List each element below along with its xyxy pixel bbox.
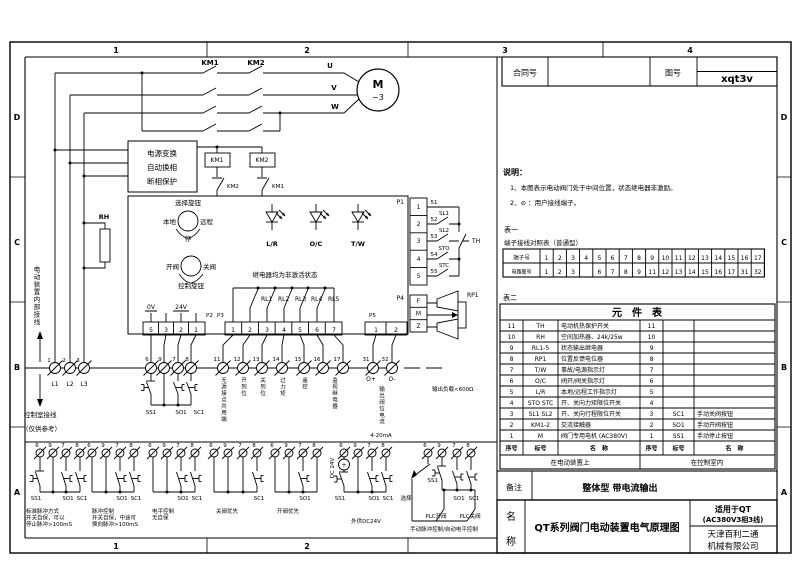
frame-row-letter: B	[781, 363, 787, 372]
table-cell: 1	[510, 433, 514, 440]
phase-w-label: W	[331, 103, 339, 111]
phase-v-label: V	[331, 84, 337, 92]
monitor-relay-label: 监视继电器	[331, 376, 338, 410]
frame-row-letter: B	[14, 363, 20, 372]
table-cell: 7	[650, 367, 654, 374]
junction-dot	[291, 287, 294, 290]
terminal14-label: 过力矩	[279, 376, 286, 397]
rp1-potentiometer	[458, 302, 466, 328]
selector-arrow-icon	[411, 470, 417, 479]
p5-label: P5	[369, 313, 376, 319]
terminal-number: 6	[145, 357, 149, 363]
table-cell: 电动机热保护开关	[561, 322, 609, 330]
table-cell: 3	[510, 411, 514, 418]
terminal-number: 6	[87, 443, 91, 449]
terminal-number: 3	[76, 358, 80, 364]
table-cell: 32	[754, 269, 762, 276]
wire	[130, 472, 135, 486]
connector-pin: 1	[194, 327, 198, 334]
group2-caption3: 换向脉冲>100mS	[92, 520, 138, 528]
table-cell: 手动开阀按钮	[697, 421, 733, 429]
table-cell: 9	[650, 345, 654, 352]
wire-number: 52	[431, 217, 438, 223]
wire	[453, 471, 458, 484]
table-cell: 手动停止按钮	[697, 432, 733, 440]
output-plus-label: O+	[366, 376, 376, 383]
group2-caption1: 脉冲控制	[92, 507, 115, 515]
junction-dot	[54, 149, 57, 152]
terminal-number: 11	[214, 357, 221, 363]
terminal-number: 8	[312, 443, 316, 449]
terminal-number: 7	[238, 443, 242, 449]
terminal-number: 6	[423, 443, 427, 449]
terminal-number: 2	[62, 358, 66, 364]
notes-line2: 2、⊘ ：用户接线端子。	[510, 198, 580, 207]
button-label: SC1	[192, 496, 203, 502]
output-minus-label: O-	[388, 376, 395, 383]
table-cell: 5	[597, 255, 601, 262]
junction-dot	[69, 162, 72, 165]
terminal-number: 7	[172, 357, 176, 363]
table-cell: 9	[650, 255, 654, 262]
group1-caption2: 开关自保，可以	[26, 514, 65, 522]
group1-caption1: 标准脉冲方式	[26, 507, 60, 515]
terminal-number: 15	[295, 357, 302, 363]
terminal-number: 9	[353, 443, 357, 449]
title-block-dividers	[525, 57, 777, 553]
relay-label: RL5	[328, 296, 340, 303]
notes-heading: 说明：	[503, 167, 527, 177]
schematic-sheet: KM1 KM2 U V W M ~3 电源变换 自动换相 断相保护 KM1 KM…	[0, 0, 800, 566]
terminal-number: 13	[253, 357, 260, 363]
table-cell: STO STC	[528, 400, 553, 407]
applicable-line1: 适用于QT	[715, 504, 752, 514]
group2-caption2: 开关自保，中途可	[92, 514, 137, 522]
junction-dot	[141, 72, 144, 75]
table-cell: 5	[510, 389, 514, 396]
connector-pin: Z	[416, 323, 420, 330]
group1-caption3: 停止脉冲>100mS	[26, 520, 72, 528]
wire	[36, 472, 41, 486]
terminal-number: 7	[452, 443, 456, 449]
frame-col-number: 1	[113, 542, 119, 551]
junction-dot	[65, 491, 68, 494]
control-knob-icon	[181, 256, 201, 276]
junction-dot	[119, 491, 122, 494]
terminal-number: 16	[314, 357, 321, 363]
wire	[174, 382, 179, 394]
terminal-number: 6	[270, 443, 274, 449]
table-cell: 5	[650, 389, 654, 396]
button-label: SC1	[77, 496, 88, 502]
table-cell: 3	[650, 411, 654, 418]
p3-label: P3	[217, 313, 224, 319]
table-cell: 8	[624, 269, 628, 276]
company-line2: 机械有限公司	[707, 541, 758, 552]
local-label: 本地	[163, 217, 177, 226]
terminal-number: 6	[148, 443, 152, 449]
table-cell: 1	[650, 433, 654, 440]
table-cell: 10	[662, 255, 670, 262]
table-cell: 2	[558, 269, 562, 276]
table2-footer: 标号	[671, 445, 684, 453]
rp1-wiper-arrow	[452, 312, 458, 318]
terminal13-label: 关到位	[259, 376, 266, 397]
table-cell: KM1-2	[531, 422, 550, 429]
terminal-number: 6	[339, 443, 343, 449]
terminal-number: 7	[298, 443, 302, 449]
sl1-label: SL1	[439, 211, 449, 217]
table2-footer: 序号	[504, 445, 517, 453]
km1-interlock-label: KM1	[272, 184, 284, 190]
junction-dot	[177, 404, 180, 407]
table-cell: 15	[728, 255, 736, 262]
table-cell: 交流接触器	[561, 421, 591, 429]
p4-label: P4	[397, 295, 405, 302]
button-label: SC1	[131, 496, 142, 502]
connector-pin: 1	[417, 204, 421, 211]
connector-pin: 3	[417, 238, 421, 245]
connector-pin: 3	[164, 327, 168, 334]
table-cell: 11	[675, 255, 683, 262]
sc1-label: SC1	[194, 410, 205, 416]
frame-row-letter: D	[14, 113, 21, 122]
junction-dot	[105, 491, 108, 494]
table-cell: 12	[688, 255, 696, 262]
terminal-number: 6	[35, 443, 39, 449]
button-label: SO1	[62, 496, 73, 502]
open-valve-label: 开阀	[166, 262, 179, 271]
zero-volt-label: 0V	[147, 304, 156, 311]
group3-caption1: 电平控制	[152, 507, 175, 515]
junction-dot	[257, 287, 260, 290]
sl2-label: SL2	[439, 228, 449, 234]
plc-open-label: PLC开阀	[425, 512, 446, 520]
junction-dot	[357, 491, 360, 494]
remark-value: 整体型 带电流输出	[581, 482, 657, 494]
notes-line1: 1、本图表示电动阀门处于中间位置，状态继电器非激励。	[510, 183, 677, 192]
table-cell: 2	[510, 422, 514, 429]
wire	[164, 335, 166, 362]
table-cell: 1	[545, 255, 549, 262]
table-cell: 3	[571, 255, 575, 262]
table-cell: 7	[611, 269, 615, 276]
table-cell: 开、关向力矩限位开关	[561, 399, 621, 407]
table-cell: 8	[650, 356, 654, 363]
contact-strokes	[203, 66, 466, 276]
junction-dot	[180, 491, 183, 494]
table-cell: 11	[508, 323, 516, 330]
junction-dot	[458, 258, 461, 261]
group7-sc1-label: SC1	[469, 496, 480, 502]
frame-col-number: 1	[113, 46, 119, 55]
drawing-title: QT系列阀门电动装置电气原理图	[534, 521, 679, 534]
terminal-number: 8	[185, 357, 189, 363]
so1-label: SO1	[175, 410, 186, 416]
button-label: SO1	[116, 496, 127, 502]
table-cell: 16	[741, 255, 749, 262]
table-cell: 10	[508, 334, 516, 341]
frame-col-number: 3	[502, 46, 508, 55]
terminal-number: 9	[437, 443, 441, 449]
output-current-label: 输出阀位电流	[378, 385, 385, 426]
led-label: T/W	[351, 240, 365, 248]
table-cell: 阀开/阀关指示灯	[561, 377, 605, 385]
table-cell: 7	[624, 255, 628, 262]
table-cell: SO1	[672, 422, 685, 429]
table-cell: O/C	[535, 378, 546, 385]
button-label: SO1	[368, 496, 379, 502]
terminal-number: 7	[367, 443, 371, 449]
wire	[392, 335, 396, 362]
table-cell: 4	[584, 255, 588, 262]
terminal11-label: 无源接点共用端	[220, 377, 227, 423]
wire	[250, 289, 258, 308]
connector-pin: 3	[265, 327, 269, 334]
km2-interlock-label: KM2	[227, 184, 239, 190]
terminal-number: 9	[101, 443, 105, 449]
group6-caption: 外供DC24V	[351, 517, 381, 525]
table-cell: 16	[714, 269, 722, 276]
power-box-line2: 自动换相	[147, 162, 177, 172]
wire	[116, 472, 121, 486]
connector-pin: 2	[248, 327, 252, 334]
terminal-number: 8	[190, 443, 194, 449]
junction-dot	[302, 491, 305, 494]
table-cell: 6	[611, 255, 615, 262]
table-cell: 2	[558, 255, 562, 262]
junction-dot	[458, 223, 461, 226]
table2-footer: 名 称	[725, 445, 743, 453]
wire	[178, 335, 181, 362]
table-cell: 8	[510, 356, 514, 363]
connector-pin: 2	[417, 221, 421, 228]
terminal-number: 8	[75, 443, 79, 449]
p1-label: P1	[397, 199, 405, 206]
junction-dot	[456, 489, 459, 492]
led-label: L/R	[266, 240, 278, 248]
phase-label: L1	[51, 381, 58, 388]
selector-knob-label: 选择旋钮	[175, 198, 202, 207]
wire	[243, 335, 250, 362]
junction-dot	[163, 404, 166, 407]
wire	[382, 472, 387, 486]
terminal-number: 7	[176, 443, 180, 449]
terminal-number: 32	[382, 357, 389, 363]
location-cell: 在电动装置上	[551, 458, 591, 467]
junction-dot	[166, 491, 169, 494]
wire	[76, 472, 81, 486]
button-label: SO1	[177, 496, 188, 502]
terminal-number: 9	[48, 443, 52, 449]
wire	[187, 382, 192, 394]
frame-row-letter: A	[14, 488, 21, 497]
group4-caption: 关阀优先	[216, 507, 239, 515]
junction-dot	[52, 491, 55, 494]
connector-pin: F	[417, 298, 421, 305]
km1-coil-label: KM1	[211, 157, 224, 164]
wire	[467, 471, 472, 484]
table-cell: SL1 SL2	[529, 411, 553, 418]
frame-row-letter: A	[781, 488, 788, 497]
table-cell: RL1-5	[532, 345, 549, 352]
terminal-number: 9	[162, 443, 166, 449]
table-cell: 阀门专用电机 (AC380V)	[561, 432, 627, 440]
table-cell: 15	[701, 269, 709, 276]
km1-label: KM1	[201, 59, 218, 67]
th-label: TH	[471, 238, 480, 245]
frame-col-number: 4	[687, 46, 693, 55]
table2-footer: 名 称	[590, 445, 608, 453]
wire	[373, 335, 376, 362]
table1-header: 电路图号	[511, 269, 531, 276]
terminal-number: 31	[363, 357, 370, 363]
table-cell: 开、关向行程限位开关	[561, 410, 621, 418]
terminal-number: 9	[284, 443, 288, 449]
wire	[368, 472, 373, 486]
table-cell: T/W	[534, 367, 547, 374]
table-cell: M	[538, 433, 543, 440]
table-cell: 17	[728, 269, 736, 276]
table1-title: 端子接线对照表（普通型）	[504, 238, 582, 247]
heater-resistor	[100, 229, 110, 262]
junction-dot	[227, 491, 230, 494]
group5-caption: 开阀优先	[277, 507, 300, 515]
table-cell: 事故/电源指示灯	[561, 366, 605, 374]
power-box-line1: 电源变换	[147, 148, 177, 158]
24v-label: 24V	[175, 304, 188, 311]
plus-sign: +	[341, 462, 346, 469]
terminal12-label: 开到位	[240, 377, 247, 397]
drawing-no-label: 图号	[665, 69, 681, 78]
down-arrow-icon	[37, 399, 43, 407]
junction-dot	[288, 491, 291, 494]
terminal-number: 8	[381, 443, 385, 449]
frame-row-letter: D	[781, 113, 788, 122]
table1-caption: 表一	[504, 225, 518, 234]
name-char-2: 称	[506, 535, 516, 548]
terminal-number: 17	[334, 357, 341, 363]
wire	[191, 335, 196, 362]
reference-only-label: （仅供参考）	[22, 424, 61, 433]
wire	[340, 473, 345, 486]
location-cell: 在控制室内	[691, 458, 724, 467]
table-cell: SC1	[673, 411, 685, 418]
control-room-wiring-label: 控制室接线	[24, 410, 57, 419]
table-cell: SS1	[673, 433, 685, 440]
name-char-1: 名	[506, 510, 516, 523]
motor-m-label: M	[373, 78, 384, 91]
phase-label: L2	[66, 381, 73, 388]
wire	[223, 335, 233, 362]
terminal-number: 1	[47, 358, 51, 364]
load-limit-label: 输出负载<600Ω	[432, 385, 473, 393]
terminal-number: 8	[252, 443, 256, 449]
table-cell: 31	[741, 269, 749, 276]
table-cell: 17	[754, 255, 762, 262]
table-cell: 13	[701, 255, 709, 262]
table-cell: 本地/远程工作指示灯	[561, 388, 617, 396]
table-cell: 9	[510, 345, 514, 352]
remote-label: 远程	[200, 217, 214, 226]
rp1-horn-bottom	[437, 319, 458, 339]
frame-col-number: 2	[304, 542, 310, 551]
connector-pin: 2	[179, 327, 183, 334]
junction-dot	[307, 287, 310, 290]
wire	[147, 382, 152, 394]
table-cell: 14	[714, 255, 722, 262]
junction-dot	[470, 489, 473, 492]
wire	[191, 472, 196, 486]
table-cell: 空间加热器、24k/25w	[561, 333, 623, 341]
selector-knob-icon	[178, 211, 198, 231]
table-cell: 11	[648, 269, 656, 276]
led-label: O/C	[310, 240, 323, 248]
wire	[282, 335, 284, 362]
remark-label: 备注	[506, 482, 522, 492]
select-switch-label: 选择	[400, 494, 412, 502]
group7-caption: 手动脉冲控制/自动电平控制	[410, 525, 478, 533]
junction-dot	[242, 491, 245, 494]
up-arrow-icon	[37, 331, 43, 339]
ma-range-label: 4-20mA	[370, 433, 392, 439]
junction-dot	[279, 112, 282, 115]
table-cell: RP1	[535, 356, 547, 363]
relay-state-note: 继电器均为非激活状态	[253, 270, 319, 279]
motor-phase-label: ~3	[372, 93, 384, 102]
table-cell: 9	[637, 269, 641, 276]
wire	[262, 335, 267, 362]
table-cell: 11	[648, 323, 656, 330]
terminal-number: 9	[158, 357, 162, 363]
connector-pin: 1	[231, 327, 235, 334]
table-cell: 手动关阀按钮	[697, 410, 733, 418]
internal-wiring-label: 电动装置内部接线	[32, 265, 40, 326]
wire-number: 55	[431, 269, 438, 275]
terminal-number: 8	[466, 443, 470, 449]
group3-caption2: 无自保	[152, 514, 169, 522]
rp1-label: RP1	[467, 292, 479, 299]
junction-dot	[83, 222, 86, 225]
contract-no-label: 合同号	[513, 68, 537, 78]
table-cell: 14	[688, 269, 696, 276]
table2-footer: 标号	[533, 445, 546, 453]
table-cell: 4	[650, 400, 654, 407]
frame-col-number: 2	[304, 46, 310, 55]
sto-label: STO	[438, 246, 450, 252]
wire	[438, 467, 443, 480]
stop-label: 停	[185, 234, 192, 243]
group7-ss1-label: SS1	[428, 478, 438, 484]
terminal-number: 6	[209, 443, 213, 449]
table-cell: 6	[650, 378, 654, 385]
wire-number: 51	[431, 200, 438, 206]
connector-pin: 1	[374, 327, 378, 334]
rp1-horn-top	[437, 291, 458, 311]
table-cell: TH	[535, 323, 544, 330]
table-cell: L/R	[536, 389, 546, 396]
dc24v-label: DC 24V	[330, 457, 336, 478]
table-cell: 3	[571, 269, 575, 276]
frame-row-letter: C	[781, 238, 787, 247]
table-cell: 7	[510, 367, 514, 374]
button-label: SS1	[31, 496, 41, 502]
table-cell: 1	[545, 269, 549, 276]
junction-dot	[371, 491, 374, 494]
phase-u-label: U	[327, 62, 333, 70]
button-label: SC1	[383, 496, 394, 502]
button-label: SS1	[335, 496, 345, 502]
